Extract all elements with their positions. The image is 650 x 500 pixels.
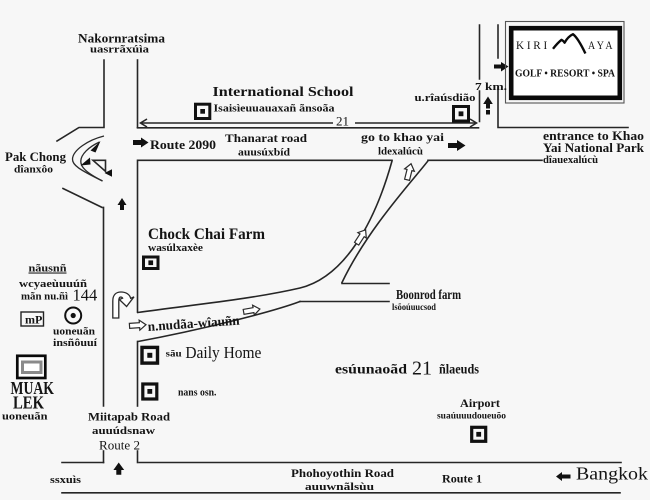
svg-text:dîauexalúcù: dîauexalúcù [543,155,598,166]
svg-text:144: 144 [73,286,98,305]
svg-text:go to khao yai: go to khao yai [361,130,445,144]
svg-text:Chock Chai Farm: Chock Chai Farm [148,226,265,243]
svg-text:Miitapab Road: Miitapab Road [88,410,170,424]
svg-text:ssxuìs: ssxuìs [50,475,81,486]
svg-text:KIRI: KIRI [516,38,550,52]
svg-text:lsõoúuucsod: lsõoúuucsod [392,303,437,313]
svg-text:auuúdsnaw: auuúdsnaw [92,426,156,437]
svg-text:mP: mP [25,313,42,327]
svg-text:Airport: Airport [460,398,500,410]
svg-text:GOLF • RESORT • SPA: GOLF • RESORT • SPA [515,68,615,80]
svg-text:Boonrod farm: Boonrod farm [396,287,462,302]
svg-text:suaúuuudoueuõo: suaúuuudoueuõo [437,412,506,422]
svg-text:21: 21 [336,114,349,129]
svg-text:wasúlxaxèe: wasúlxaxèe [148,243,204,254]
svg-text:ldexalúcù: ldexalúcù [378,147,423,158]
svg-text:auusúxbíd: auusúxbíd [238,148,291,159]
svg-text:AYA: AYA [588,38,615,52]
svg-text:Yai National Park: Yai National Park [543,141,644,155]
svg-text:uoneuãn: uoneuãn [2,412,48,423]
svg-text:u.rîaúsdião: u.rîaúsdião [415,93,476,104]
svg-text:Bangkok: Bangkok [576,464,648,484]
svg-text:Route 2090: Route 2090 [150,138,216,152]
svg-text:Pak Chong: Pak Chong [5,150,67,164]
svg-text:21: 21 [412,358,432,380]
svg-text:insñôuuí: insñôuuí [53,338,97,349]
svg-text:uasrrãxúìa: uasrrãxúìa [90,45,149,56]
svg-text:International School: International School [213,85,354,100]
svg-text:Daily Home: Daily Home [185,343,261,362]
svg-text:esúunaoãd: esúunaoãd [335,363,407,378]
svg-text:auuwnãlsùu: auuwnãlsùu [305,482,375,493]
svg-text:sãu: sãu [166,350,183,360]
svg-text:Route 2: Route 2 [99,439,140,453]
svg-text:7 km.: 7 km. [475,81,507,93]
svg-text:Thanarat road: Thanarat road [225,131,307,145]
svg-text:mãn nu.ñì: mãn nu.ñì [21,291,68,303]
svg-text:ñlaeuds: ñlaeuds [439,363,479,378]
svg-text:Phohoyothin Road: Phohoyothin Road [291,466,394,480]
svg-text:dîanxôo: dîanxôo [14,165,53,176]
svg-text:Isaisìeuuauaxañ ãnsoãa: Isaisìeuuauaxañ ãnsoãa [214,104,336,115]
svg-text:uoneuãn: uoneuãn [53,327,95,338]
svg-text:LEK: LEK [13,393,44,413]
svg-text:nãusnñ: nãusnñ [29,264,67,275]
svg-text:Route 1: Route 1 [442,474,482,486]
svg-text:Nakornratsima: Nakornratsima [78,31,166,46]
svg-text:nans osn.: nans osn. [178,388,217,399]
